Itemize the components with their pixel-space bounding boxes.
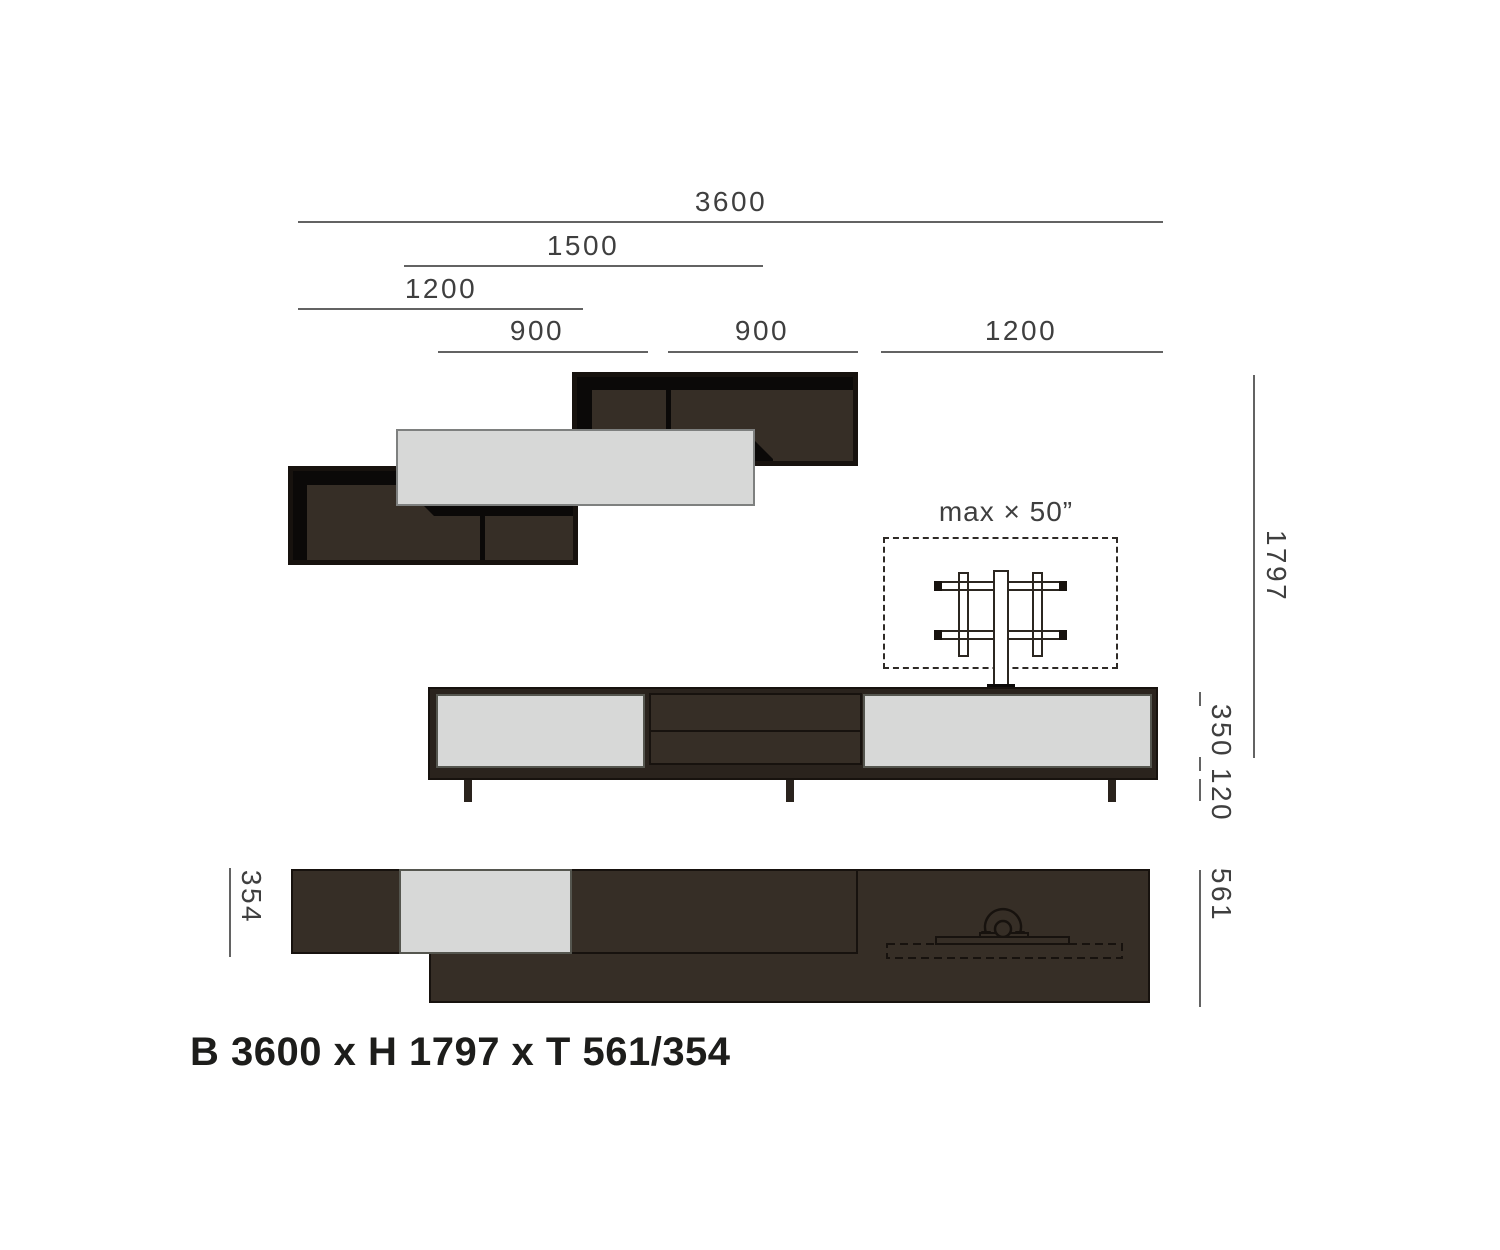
bracket-cap-left [934, 630, 942, 640]
dim-900-right-label: 900 [735, 315, 789, 347]
dim-900-left-line [438, 351, 648, 353]
dim-120-tick [1199, 779, 1201, 801]
dim-1797-line [1253, 375, 1255, 758]
dim-120-label: 120 [1205, 768, 1237, 822]
dim-1500-line [404, 265, 763, 267]
dim-1200-right-line [881, 351, 1163, 353]
lowboard-door-left [436, 694, 645, 768]
lowboard-leg-middle [786, 780, 794, 802]
dim-1200-left-line [298, 308, 583, 310]
lowboard-leg-left [464, 780, 472, 802]
shelf-inner-shadow-left [293, 471, 307, 560]
bracket-cap-right [1059, 630, 1067, 640]
dim-561-line [1199, 870, 1201, 1007]
dim-561-label: 561 [1205, 868, 1237, 922]
dim-350-label: 350 [1205, 704, 1237, 758]
dim-1200-left-label: 1200 [405, 273, 477, 305]
lowboard-door-right [863, 694, 1152, 768]
tv-max-size-label: max × 50” [939, 496, 1073, 528]
lowboard [428, 687, 1158, 780]
wall-cabinet-gray [396, 429, 755, 506]
bracket-cap-left [934, 581, 942, 591]
shelf-inner-shadow-top [577, 377, 853, 390]
dim-350-tick-top [1199, 692, 1201, 706]
dim-354-label: 354 [235, 870, 267, 924]
lowboard-drawers [649, 693, 862, 765]
lowboard-leg-right [1108, 780, 1116, 802]
dim-900-right-line [668, 351, 858, 353]
dim-354-line [229, 868, 231, 957]
dim-total-width-line [298, 221, 1163, 223]
dim-900-left-label: 900 [510, 315, 564, 347]
dim-1200-right-label: 1200 [985, 315, 1057, 347]
plan-gray-insert [399, 869, 572, 954]
tv-mount-post [993, 570, 1009, 688]
tv-swivel-icon [880, 900, 1130, 962]
dim-1797-label: 1797 [1260, 530, 1292, 602]
dim-1500-label: 1500 [547, 230, 619, 262]
tv-bracket-rail-left [958, 572, 969, 657]
tv-bracket-rail-right [1032, 572, 1043, 657]
drawer-divider [651, 730, 860, 732]
dim-350-tick-bottom [1199, 757, 1201, 771]
size-caption: B 3600 x H 1797 x T 561/354 [190, 1030, 731, 1075]
dim-total-width-label: 3600 [695, 186, 767, 218]
plan-bottom-row [429, 954, 858, 1003]
plan-top-row [291, 869, 858, 954]
furniture-technical-diagram: 3600 1500 1200 900 900 1200 max × 50” [0, 0, 1500, 1250]
bracket-cap-right [1059, 581, 1067, 591]
